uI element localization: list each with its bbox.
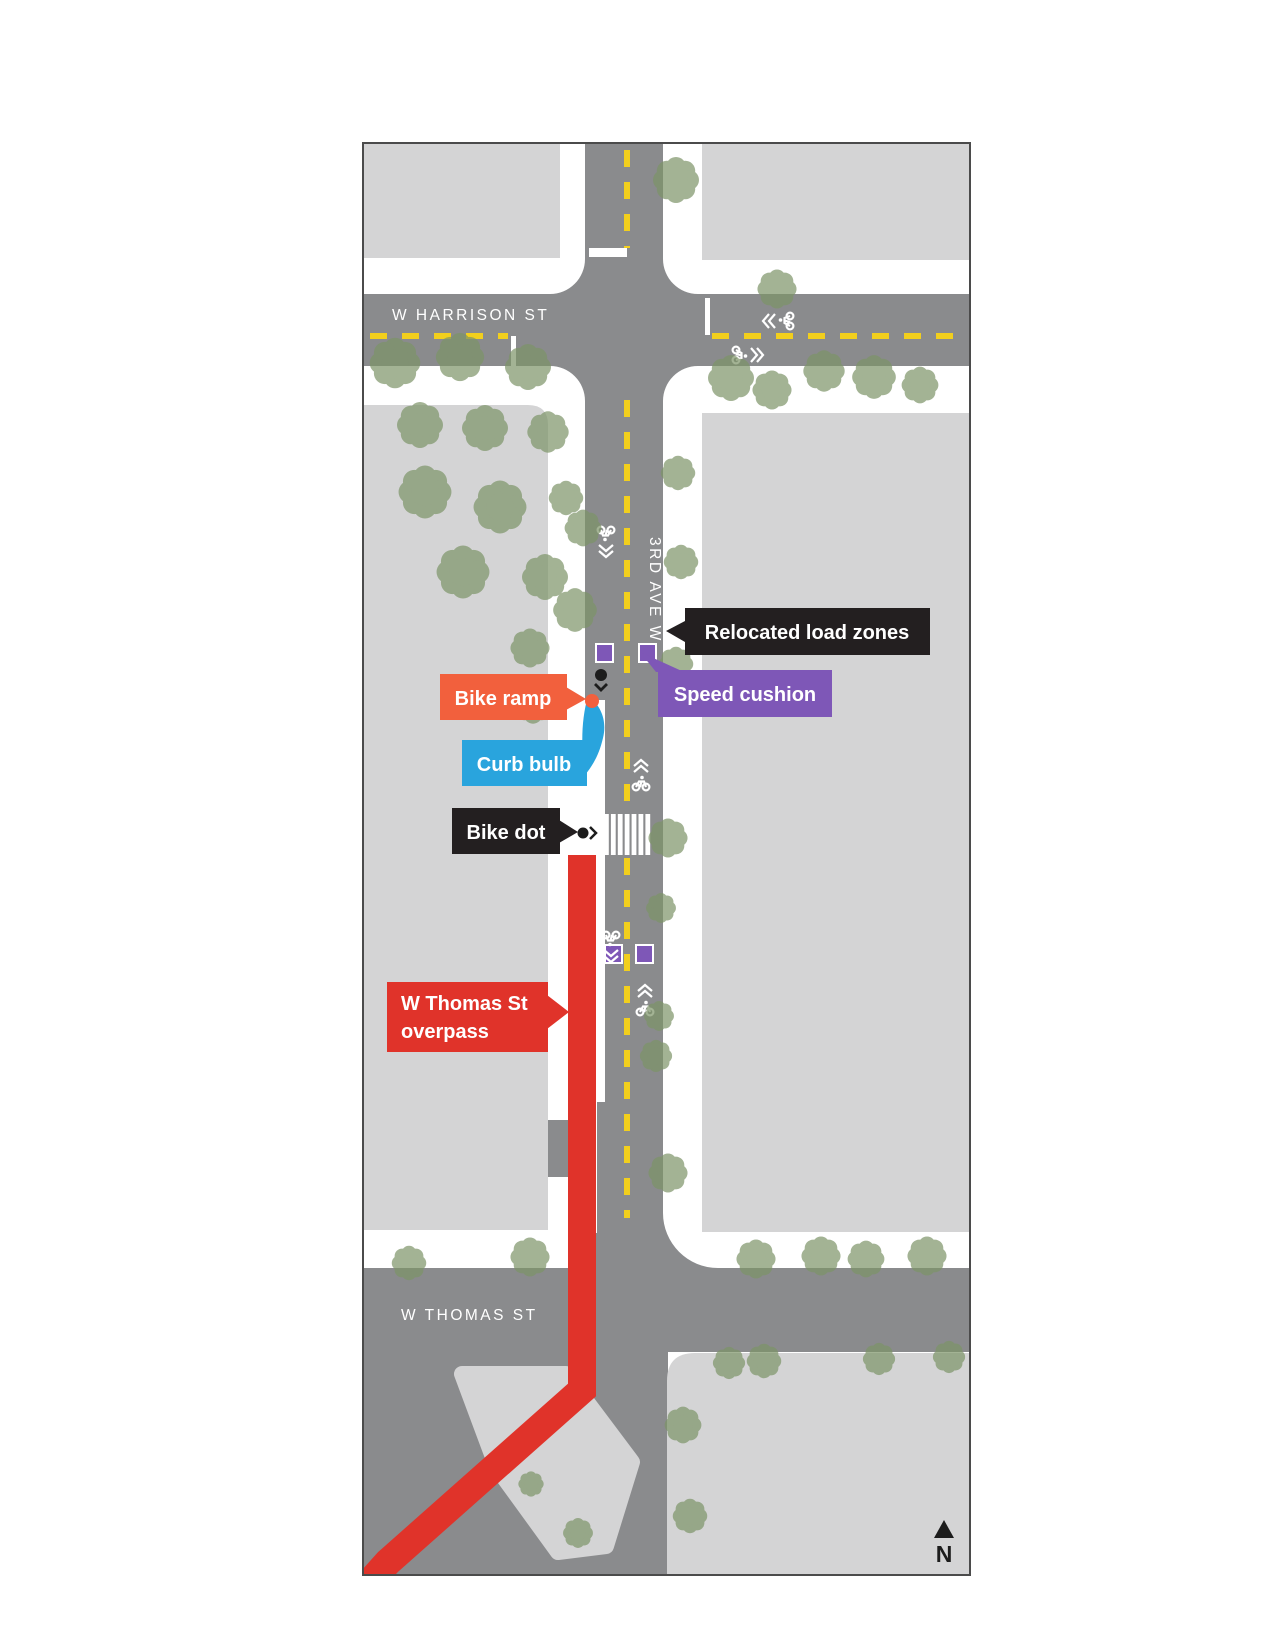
tree-icon (553, 588, 597, 632)
tree-icon (518, 1471, 543, 1496)
tree-icon (399, 466, 452, 519)
street-improvements-map: W HARRISON ST 3RD AVE W W THOMAS ST Relo… (0, 0, 1275, 1650)
callout-relocated-load-zones: Relocated load zones (666, 608, 930, 655)
tree-icon (392, 1246, 427, 1281)
tree-icon (708, 355, 754, 401)
bike-ramp-dot-icon (585, 694, 599, 708)
tree-icon (549, 481, 584, 516)
tree-icon (640, 1040, 672, 1072)
tree-icon (757, 269, 796, 308)
speed-cushion-marker-icon (636, 945, 653, 963)
tree-icon (397, 402, 443, 448)
tree-icon (648, 818, 687, 857)
block-northwest (363, 143, 560, 258)
tree-icon (510, 628, 549, 667)
tree-icon (673, 1499, 708, 1534)
tree-icon (863, 1343, 895, 1375)
tree-icon (665, 1407, 702, 1444)
tree-icon (736, 1239, 775, 1278)
stop-bar-north-stub (589, 248, 627, 257)
tree-icon (505, 344, 551, 390)
block-northeast (702, 143, 970, 260)
callout-label: Bike dot (467, 822, 546, 844)
tree-icon (933, 1341, 965, 1373)
street-label-harrison: W HARRISON ST (392, 307, 549, 324)
tree-icon (648, 1153, 687, 1192)
tree-icon (462, 405, 508, 451)
tree-icon (902, 367, 939, 404)
street-label-thomas: W THOMAS ST (401, 1307, 538, 1324)
tree-icon (565, 510, 602, 547)
stop-bar-harrison-east (705, 298, 710, 335)
tree-icon (713, 1347, 745, 1379)
callout-label: Curb bulb (477, 754, 571, 776)
callout-bike-ramp: Bike ramp (440, 674, 586, 720)
speed-cushion-marker-icon (596, 644, 613, 662)
callout-label: Speed cushion (674, 684, 816, 706)
callout-bike-dot: Bike dot (452, 808, 578, 854)
tree-icon (801, 1236, 840, 1275)
tree-icon (563, 1518, 593, 1548)
tree-icon (907, 1236, 946, 1275)
tree-icon (436, 333, 484, 381)
tree-icon (664, 545, 699, 580)
tree-icon (646, 893, 676, 923)
callout-label-line2: overpass (401, 1021, 489, 1043)
tree-icon (510, 1237, 549, 1276)
tree-icon (522, 554, 568, 600)
callout-label: Relocated load zones (705, 622, 910, 644)
tree-icon (653, 157, 699, 203)
callout-curb-bulb: Curb bulb (462, 740, 587, 786)
tree-icon (370, 338, 421, 389)
tree-icon (527, 411, 568, 452)
tree-icon (848, 1241, 885, 1278)
street-label-3rd-ave: 3RD AVE W (646, 537, 663, 643)
tree-icon (474, 481, 527, 534)
tree-icon (661, 456, 696, 491)
callout-label: Bike ramp (455, 688, 552, 710)
callout-overpass: W Thomas St overpass (387, 982, 569, 1052)
tree-icon (752, 370, 791, 409)
bike-dot-icon (578, 828, 589, 839)
callout-label-line1: W Thomas St (401, 993, 528, 1015)
north-label: N (936, 1541, 953, 1567)
tree-icon (852, 355, 896, 399)
block-southeast (667, 1353, 970, 1575)
tree-icon (644, 1001, 674, 1031)
crosswalk (604, 814, 650, 855)
bike-dot-icon (595, 669, 607, 681)
tree-icon (437, 546, 490, 599)
tree-icon (803, 350, 844, 391)
block-east (702, 413, 970, 1232)
tree-icon (747, 1344, 782, 1379)
